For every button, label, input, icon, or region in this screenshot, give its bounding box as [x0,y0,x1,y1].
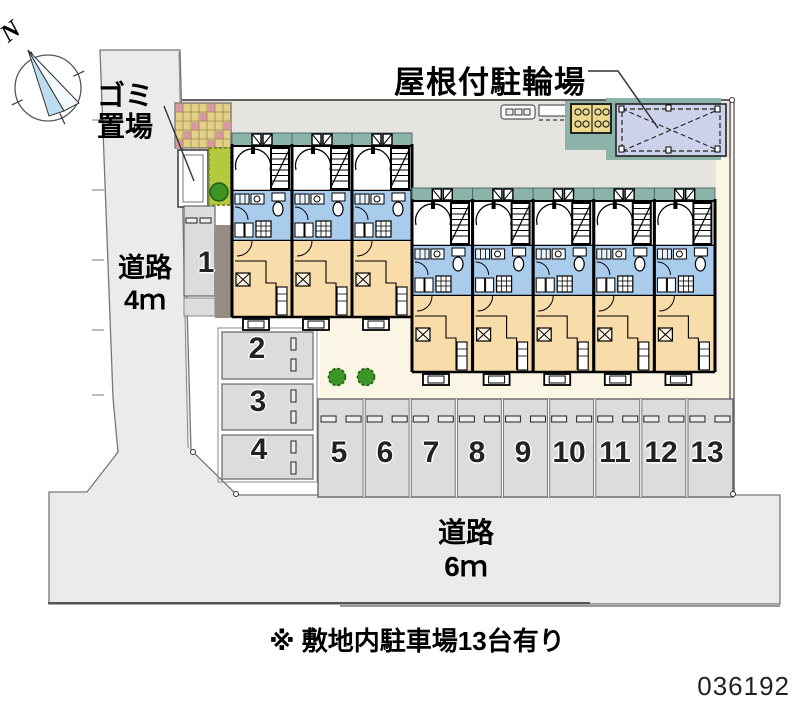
parking-stall-number-3: 3 [250,385,267,419]
road-bottom-label: 道路 6ｍ [414,516,518,584]
road-left-width: 4ｍ [103,284,187,316]
building-right [412,188,715,385]
road-bottom-width: 6ｍ [414,550,518,584]
covered-bicycle-parking [616,98,735,157]
parking-stall-number-12: 12 [644,436,677,470]
parking-stall-number-13: 13 [690,436,723,470]
road-left-name: 道路 [103,252,187,284]
plan-id: 036192 [655,671,790,702]
parking-stall-number-7: 7 [423,436,440,470]
parking-stall-number-11: 11 [599,436,631,470]
site-plan-page: N ゴミ 置場 屋根付駐輪場 道路 4ｍ 道路 6ｍ ※ 敷地内駐車場13台有り… [0,0,800,727]
meter-box [571,104,611,133]
parking-stall-number-1: 1 [198,246,215,280]
garbage-area [175,103,231,222]
parking-stall-number-5: 5 [331,436,348,470]
garbage-area-label: ゴミ 置場 [97,80,153,142]
parking-note: ※ 敷地内駐車場13台有り [247,621,587,658]
road-bottom-name: 道路 [414,516,518,550]
parking-stall-number-6: 6 [377,436,394,470]
parking-stall-number-9: 9 [515,436,532,470]
parking-stall-number-2: 2 [249,332,266,366]
garbage-area-label-line1: ゴミ [97,80,153,111]
garbage-area-label-line2: 置場 [97,111,153,142]
compass [12,50,85,124]
road-left-label: 道路 4ｍ [103,252,187,316]
parking-stall-number-8: 8 [469,436,486,470]
parking-stall-number-10: 10 [552,436,585,470]
building-left [232,133,412,330]
parking-stall-number-4: 4 [251,433,268,467]
covered-bicycle-parking-label: 屋根付駐輪場 [394,57,586,102]
